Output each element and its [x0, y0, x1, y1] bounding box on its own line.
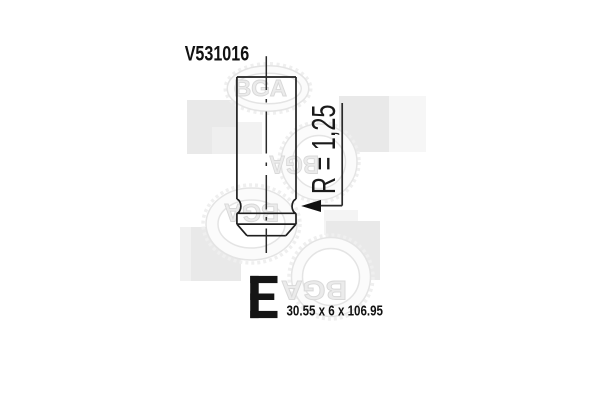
svg-text:30.55 x 6 x 106.95: 30.55 x 6 x 106.95	[287, 303, 384, 320]
svg-text:V531016: V531016	[185, 43, 250, 66]
svg-text:BGA: BGA	[224, 198, 279, 225]
svg-text:BGA: BGA	[281, 275, 347, 305]
svg-text:R = 1,25: R = 1,25	[305, 105, 342, 195]
svg-text:BGA: BGA	[234, 75, 287, 101]
